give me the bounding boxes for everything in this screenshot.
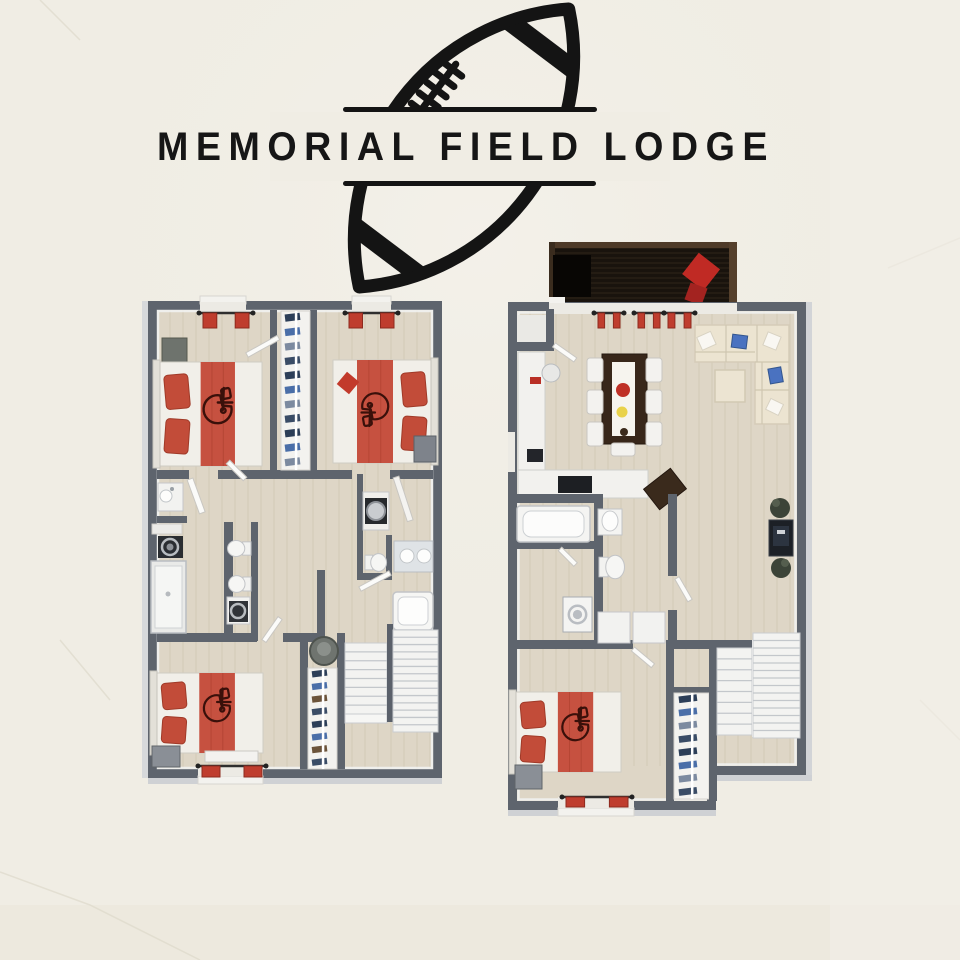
svg-text:MEMORIAL FIELD LODGE: MEMORIAL FIELD LODGE (157, 125, 775, 169)
